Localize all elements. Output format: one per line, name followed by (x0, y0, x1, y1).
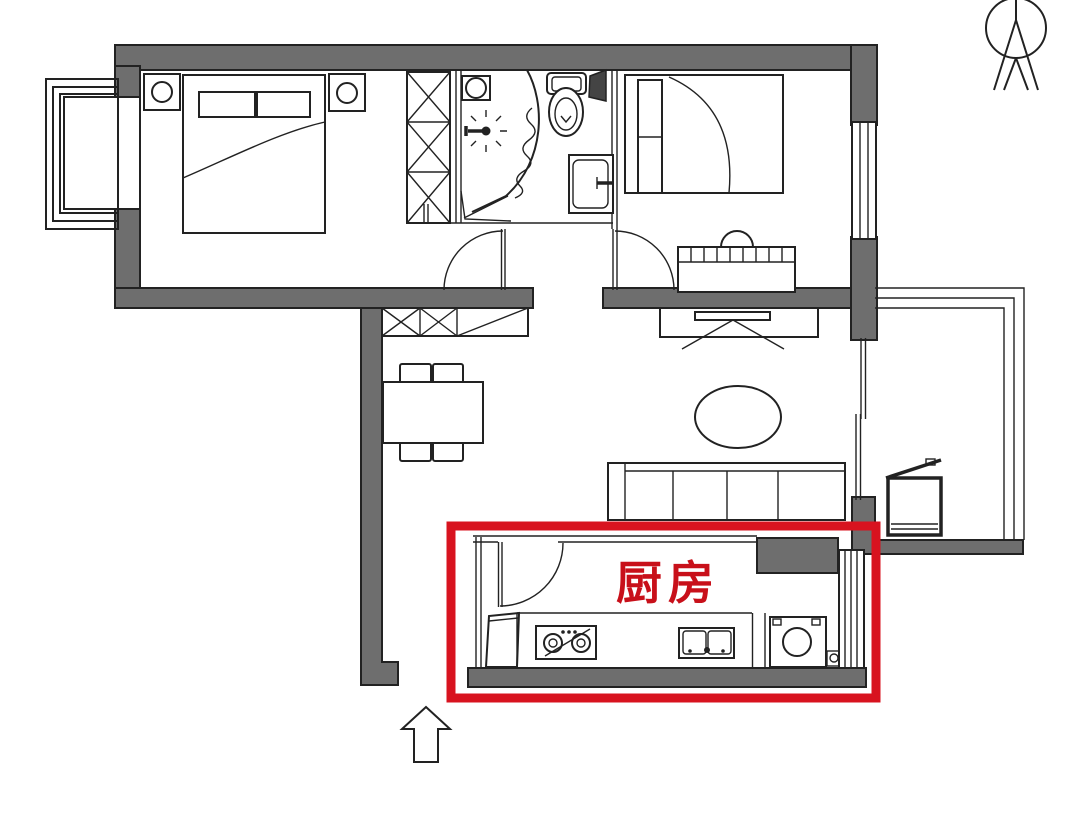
kitchen-label: 厨房 (616, 556, 720, 610)
wall-balcony-bottom (875, 540, 1023, 554)
kitchen-window (839, 550, 864, 668)
dresser (678, 231, 795, 292)
living-dining (383, 308, 866, 520)
dining-chair (433, 364, 463, 383)
dining-table (383, 382, 483, 443)
window-right (852, 122, 876, 239)
storage-box-lid (886, 460, 941, 478)
hallway-cabinet (382, 308, 528, 336)
wall-kitchen-bottom (468, 668, 866, 687)
shower-curtain-wave (515, 108, 535, 198)
sink-icon (679, 628, 734, 658)
shower-head-icon (466, 110, 507, 152)
bathroom-left-wall (456, 70, 461, 223)
burner (572, 634, 590, 652)
faucet (704, 647, 710, 653)
tv-screen (695, 312, 770, 320)
kitchen-door (499, 542, 564, 607)
pipe-shaft (589, 70, 606, 101)
tv-cabinet (660, 308, 818, 349)
storage-box (886, 459, 941, 535)
wall-top (115, 45, 855, 70)
dining-set (383, 364, 483, 461)
toilet-icon (547, 73, 586, 136)
kitchen-left-wall (476, 537, 481, 668)
dresser-mirror (721, 231, 753, 247)
nightstand-left (144, 74, 180, 110)
north-compass-icon (986, 0, 1046, 90)
bed-single (625, 75, 783, 193)
nightstand-right (329, 74, 365, 111)
entrance-arrow-icon (402, 707, 450, 762)
dining-chair (400, 442, 431, 461)
floor-plan: 厨房 (0, 0, 1080, 832)
balcony (875, 288, 1024, 540)
wall-vertical-left (361, 308, 398, 685)
door-swing-arc (615, 231, 674, 290)
washer-drum (783, 628, 811, 656)
burner (544, 634, 562, 652)
dining-chair (433, 442, 463, 461)
kitchen-top-partition (473, 536, 757, 542)
door-swing-arc (444, 231, 503, 290)
sofa (608, 463, 845, 520)
wardrobe (407, 72, 450, 223)
bathroom-door (444, 229, 505, 290)
balcony-sliding-door (856, 338, 866, 500)
dining-chair (400, 364, 431, 383)
hallway (382, 229, 674, 336)
washbasin (569, 155, 613, 213)
coffee-table-oval (695, 386, 781, 448)
bedroom-left (144, 72, 450, 233)
bay-window (46, 79, 140, 229)
balcony-window-frame (875, 288, 1024, 540)
bedroom-right (625, 75, 876, 292)
gas-stove-icon (536, 626, 596, 659)
floor-plan-canvas: 厨房 (0, 0, 1080, 832)
washing-machine-icon (770, 617, 842, 667)
bedroom-right-door (613, 229, 674, 290)
wall-south-left (115, 288, 533, 308)
wall-right-top (851, 45, 877, 125)
wall-right-mid (851, 237, 877, 340)
door-swing-arc (500, 543, 563, 606)
bay-window-seat (64, 97, 140, 209)
wall-kitchen-top-right (757, 538, 838, 573)
